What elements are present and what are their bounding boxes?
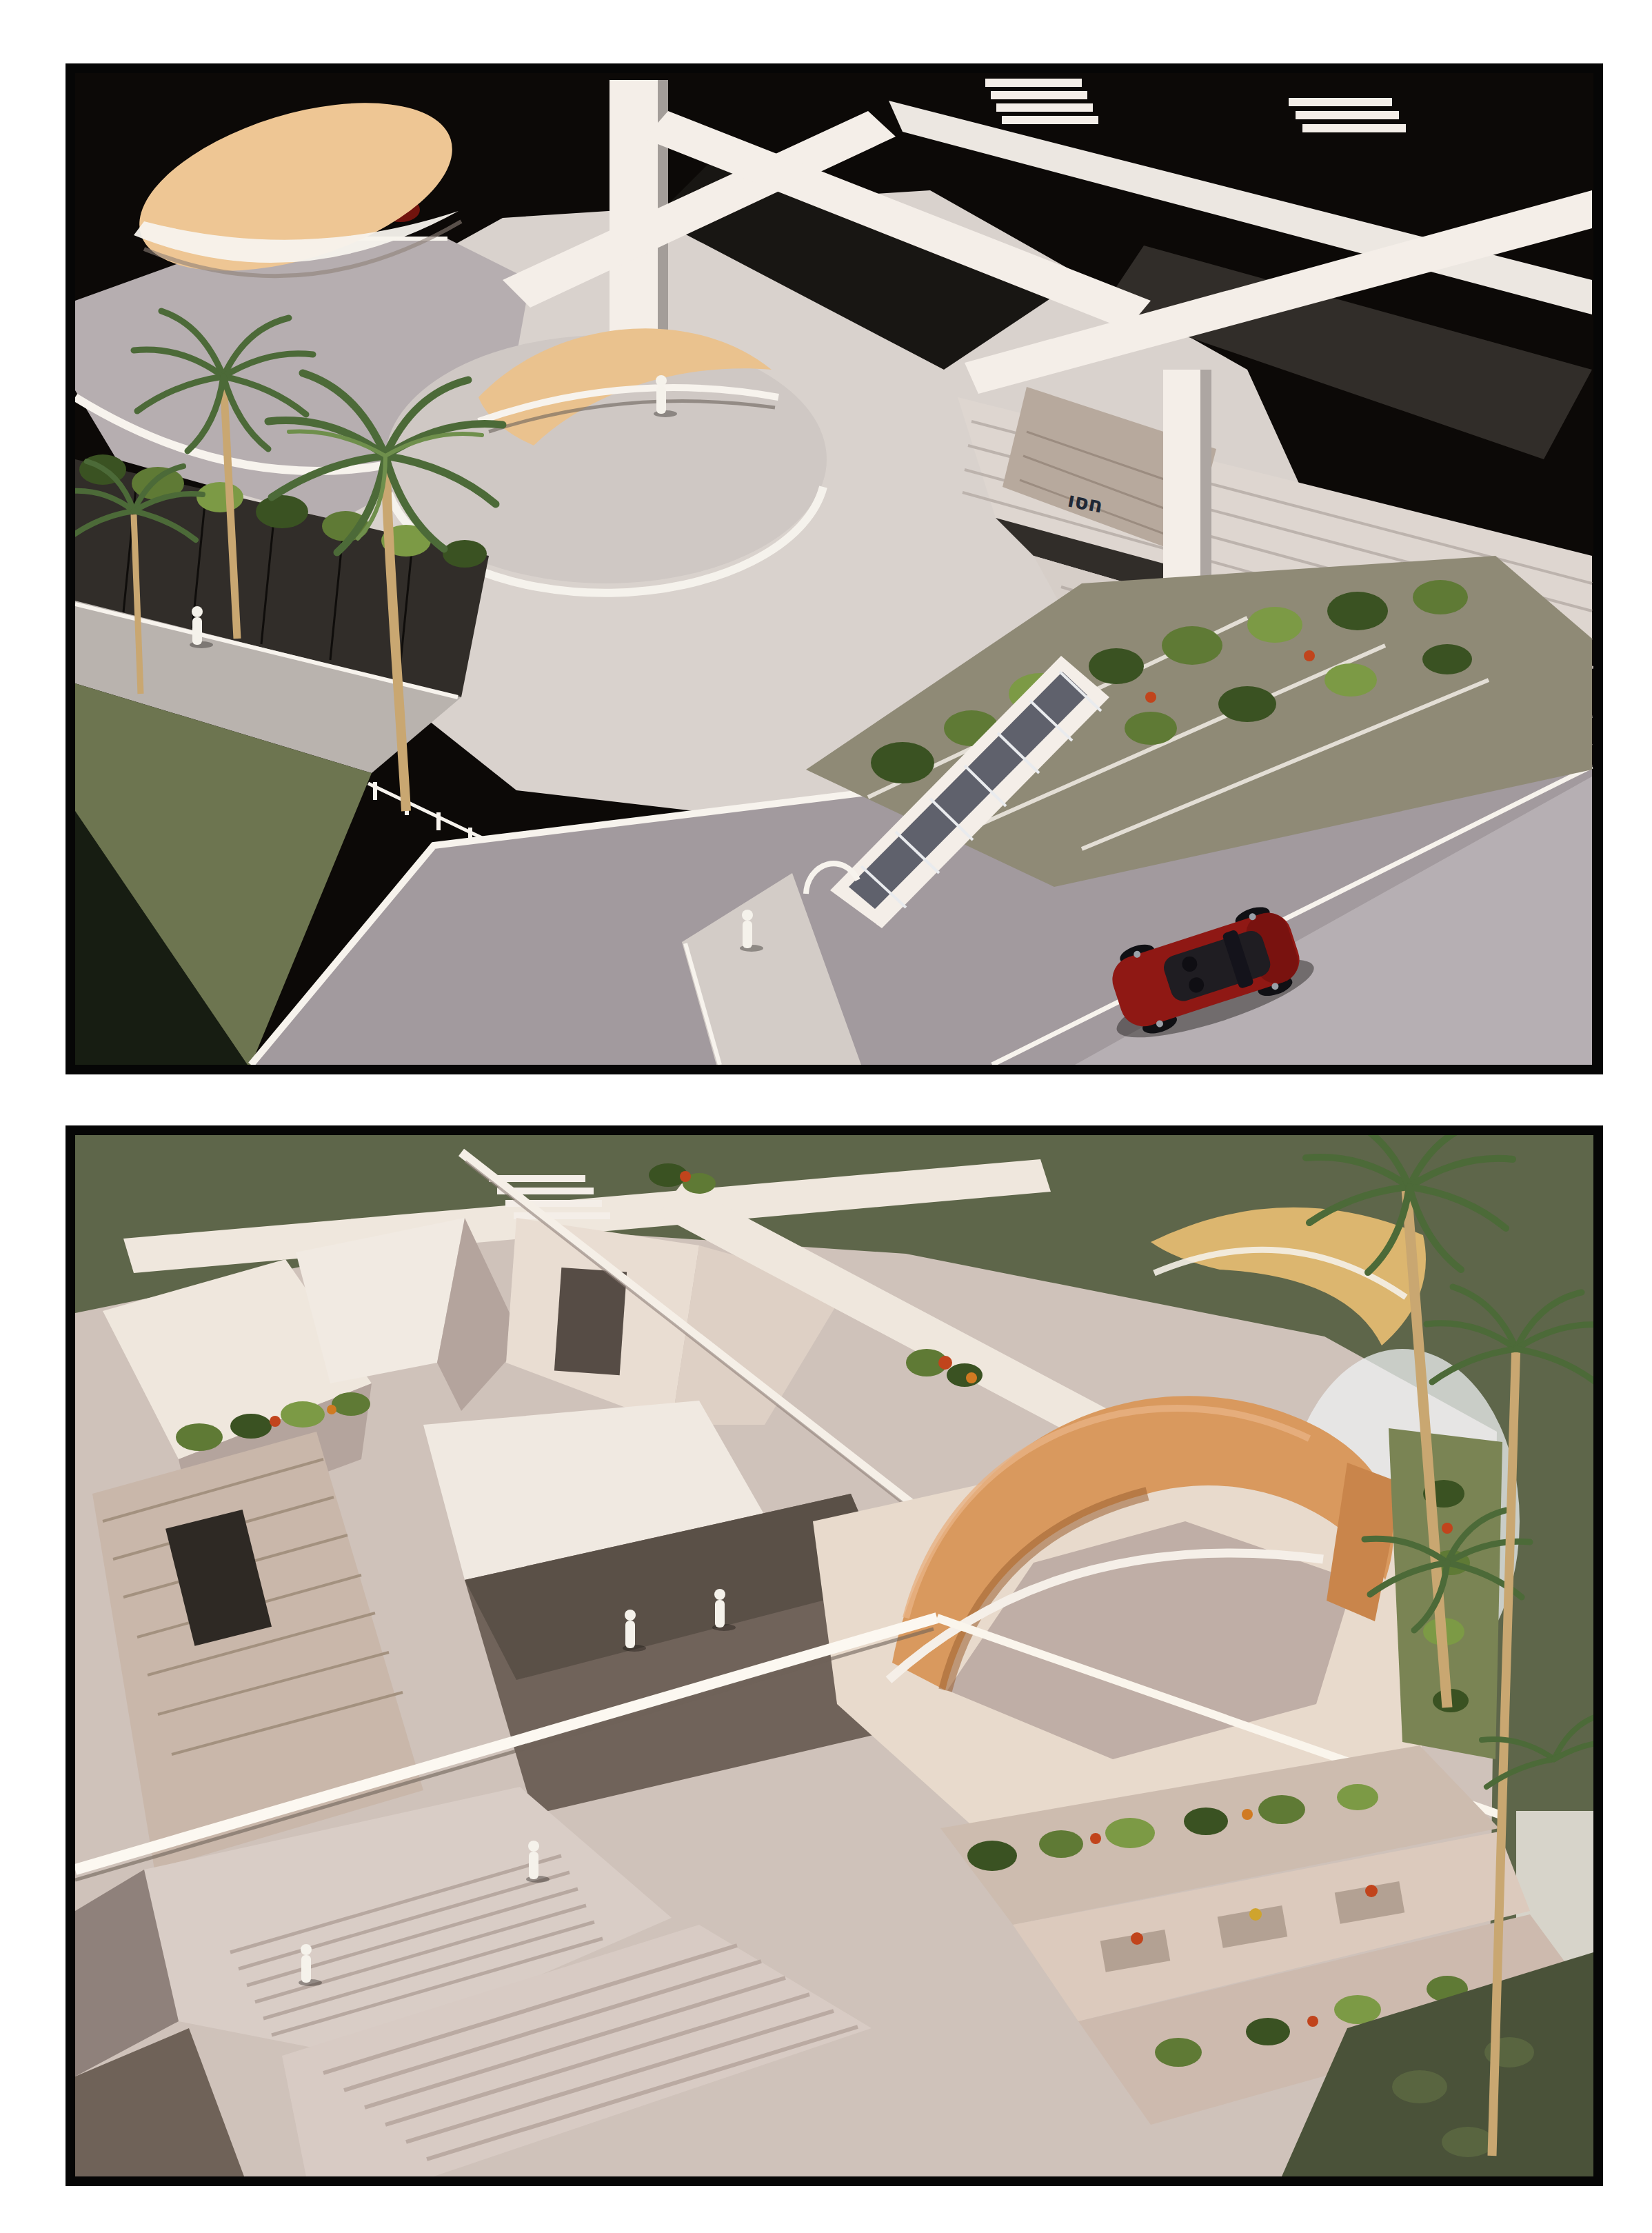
photo-top-image: חסו: [75, 73, 1593, 1065]
right-roof-garden: [1389, 1428, 1502, 1759]
wall-opening: [554, 1268, 627, 1375]
photo-bottom-frame: [66, 1125, 1603, 2186]
photo-top-frame: חסו: [66, 63, 1603, 1074]
photo-bottom-image: [75, 1135, 1593, 2176]
slatted-stair-top-right: [1289, 98, 1406, 132]
page: חסו: [0, 0, 1652, 2233]
